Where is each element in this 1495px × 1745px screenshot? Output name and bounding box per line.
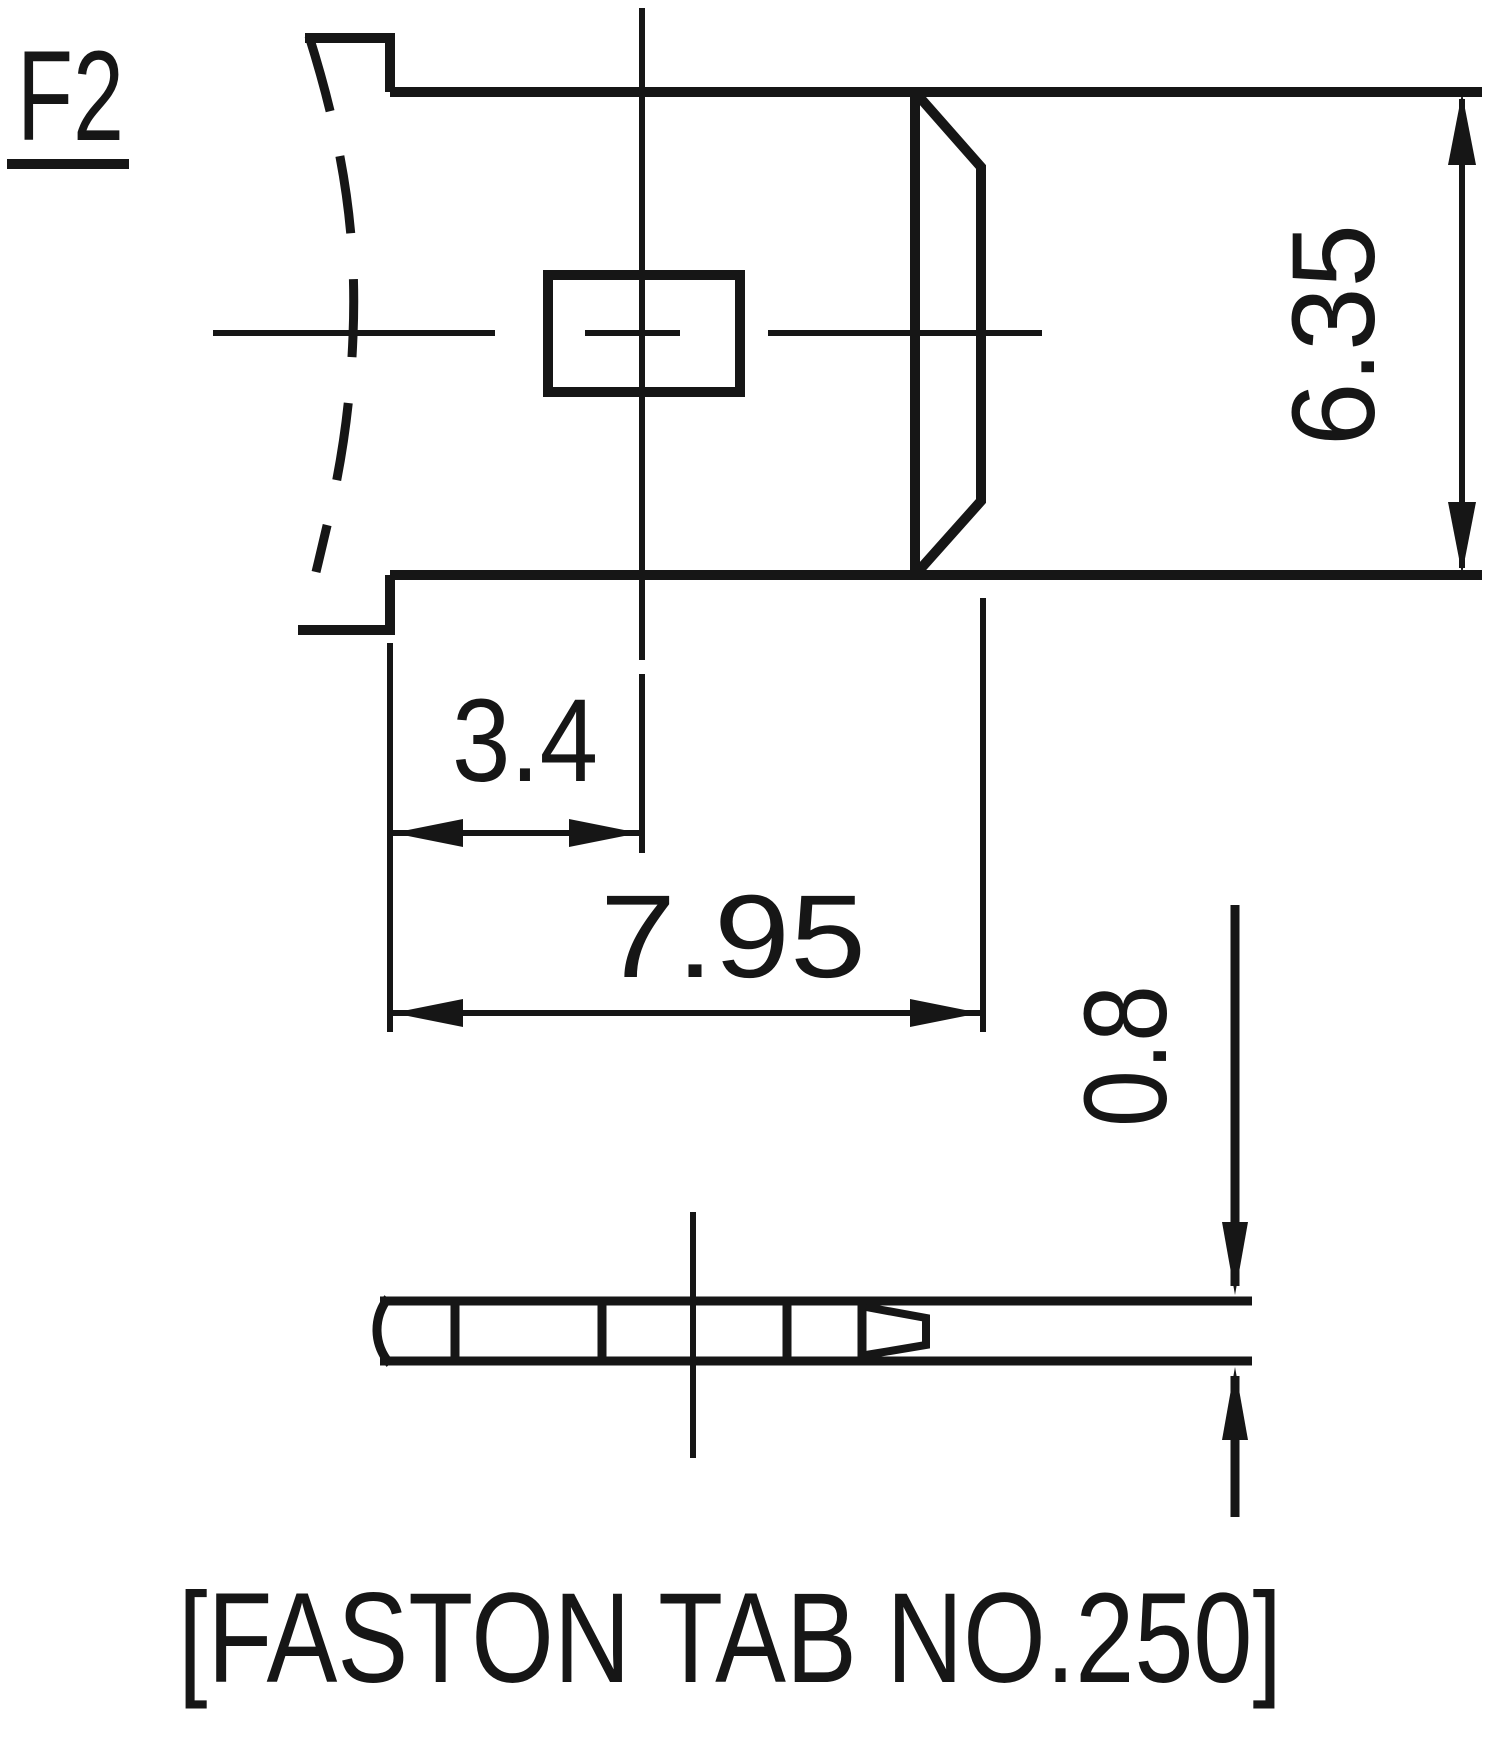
- arrowhead-down-icon: [1448, 502, 1476, 574]
- dimension-tab-length: 7.95: [390, 598, 983, 1032]
- faston-tab-drawing: F2: [0, 0, 1495, 1745]
- view-label-group: F2: [7, 25, 129, 168]
- arrowhead-up-icon: [1448, 93, 1476, 165]
- side-tip-chamfer: [866, 1307, 926, 1355]
- drawing-page: F2: [0, 0, 1495, 1745]
- side-left-end: [377, 1298, 390, 1364]
- view-label: F2: [17, 25, 124, 168]
- caption: [FASTON TAB NO.250]: [178, 1567, 1282, 1710]
- side-view: [377, 1212, 1252, 1458]
- dim-08-text: 0.8: [1060, 985, 1192, 1127]
- arrowhead-left-icon: [393, 999, 463, 1027]
- dim-635-text: 6.35: [1268, 224, 1400, 446]
- dimension-thickness: 0.8: [1060, 905, 1248, 1517]
- arrowhead-down-icon: [1222, 1222, 1248, 1295]
- arrowhead-up-icon: [1222, 1367, 1248, 1440]
- dim-34-text: 3.4: [452, 675, 598, 807]
- break-line: [309, 36, 354, 572]
- arrowhead-right-icon: [910, 999, 980, 1027]
- dimension-tab-width: 6.35: [1268, 93, 1476, 574]
- arrowhead-right-icon: [569, 819, 639, 847]
- dim-795-text: 7.95: [600, 871, 866, 1003]
- arrowhead-left-icon: [393, 819, 463, 847]
- tab-shoulder-bottom: [298, 575, 390, 630]
